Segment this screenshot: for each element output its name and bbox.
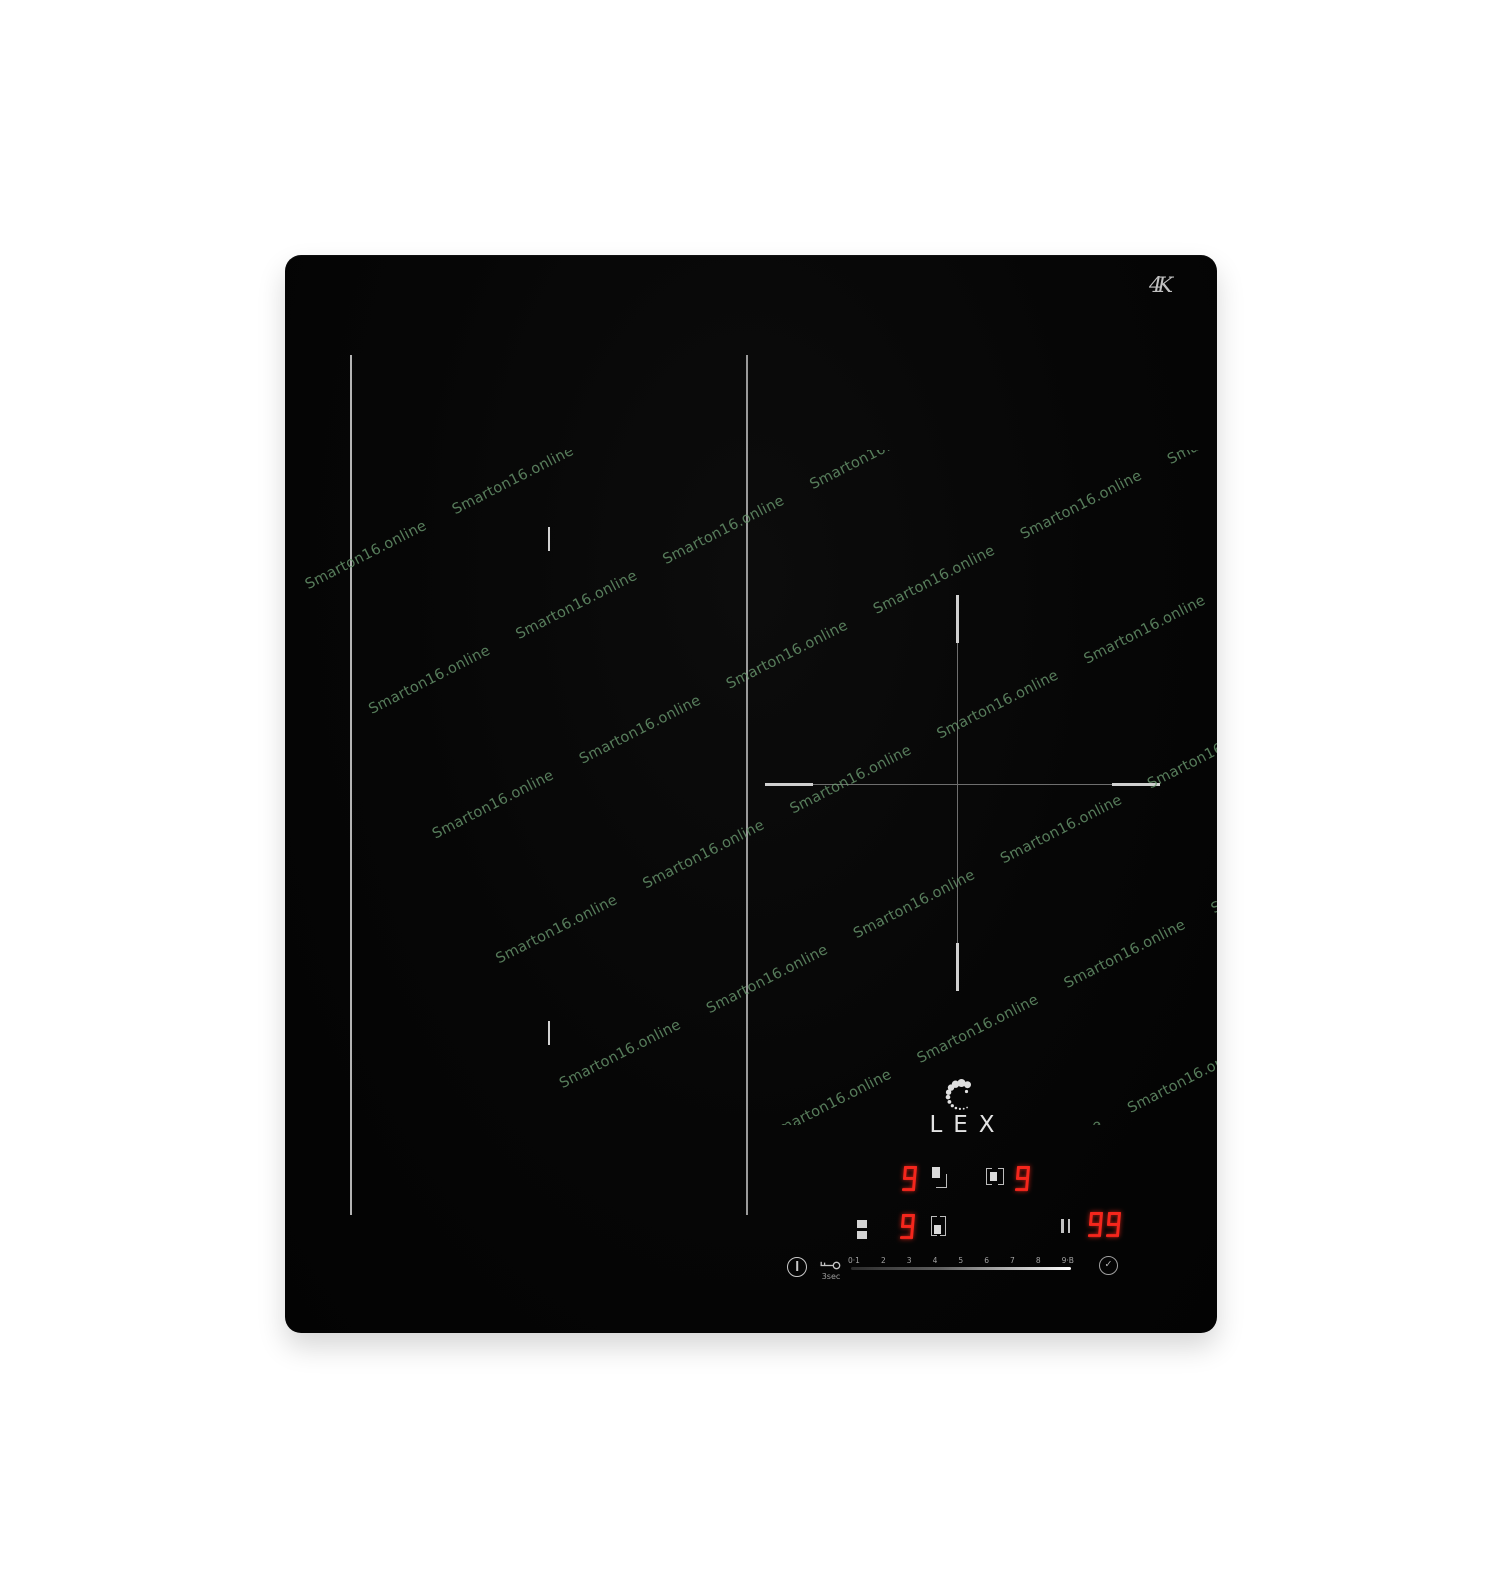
slider-scale-label: 8 xyxy=(1036,1256,1041,1265)
watermark-text: Smarton16.online xyxy=(513,568,640,643)
confirm-check-icon: ✓ xyxy=(1099,1256,1118,1275)
watermark-text: Smarton16.online xyxy=(450,450,577,518)
watermark-text: Smarton16.online xyxy=(724,618,851,693)
zone-position-right-icon xyxy=(986,1168,1004,1185)
watermark-text: Smarton16.online xyxy=(1165,450,1217,468)
right-zone-crosshair-vertical xyxy=(957,595,958,991)
lex-logo-text: LEX xyxy=(902,1112,1022,1138)
watermark-text: Smarton16.online xyxy=(430,767,557,842)
lock-hold-duration-label: 3sec xyxy=(816,1272,846,1281)
watermark-text: Smarton16.online xyxy=(915,992,1042,1067)
flex-zone-right-line xyxy=(746,355,748,1215)
slider-scale-label: 7 xyxy=(1010,1256,1015,1265)
zone-position-rear-left-icon xyxy=(931,1216,946,1236)
watermark-text: Smarton16.online xyxy=(1125,1042,1217,1117)
watermark-text: Smarton16.online xyxy=(935,667,1062,742)
watermark-text: Smarton16.online xyxy=(640,817,767,892)
slider-scale-label: 0·1 xyxy=(848,1256,860,1265)
product-photo: 4K xyxy=(0,0,1500,1587)
watermark-text: Smarton16.online xyxy=(285,450,366,468)
flex-zone-center-tick-top xyxy=(548,527,550,551)
key-lock-icon xyxy=(818,1259,842,1272)
slider-scale-label: 2 xyxy=(881,1256,886,1265)
watermark-text: Smarton16.online xyxy=(788,742,915,817)
watermark-text: Smarton16.online xyxy=(1062,917,1189,992)
cooktop-glass-panel: 4K xyxy=(285,255,1217,1333)
watermark-text: Smarton16.online xyxy=(871,543,998,618)
crosshair-tick-bottom xyxy=(956,943,959,991)
crosshair-tick-top xyxy=(956,595,959,643)
right-zone-crosshair-horizontal xyxy=(765,784,1160,785)
flex-zone-left-line xyxy=(350,355,352,1215)
watermark-text: Smarton16.online xyxy=(303,518,430,593)
watermark-text: Smarton16.online xyxy=(851,867,978,942)
watermark-text: Smarton16.online xyxy=(660,493,787,568)
power-button-icon xyxy=(787,1257,807,1277)
watermark-text: Smarton16.online xyxy=(807,450,934,493)
zone-position-front-left-icon xyxy=(932,1167,947,1189)
watermark-text: Smarton16.online xyxy=(493,892,620,967)
glass-brand-mark: 4K xyxy=(1149,273,1168,297)
watermark-text: Smarton16.online xyxy=(366,643,493,718)
watermark-text: Smarton16.online xyxy=(1018,468,1145,543)
flex-zone-center-tick-bottom xyxy=(548,1021,550,1045)
watermark-text: Smarton16.online xyxy=(1209,842,1217,917)
crosshair-tick-right xyxy=(1112,783,1160,786)
watermark-text: Smarton16.online xyxy=(704,942,831,1017)
watermark-grid: Smarton16.onlineSmarton16.onlineSmarton1… xyxy=(285,450,1217,1125)
slider-scale-label: 6 xyxy=(984,1256,989,1265)
slider-scale-label: 9·B xyxy=(1062,1256,1074,1265)
power-slider-track xyxy=(851,1267,1071,1270)
crosshair-tick-left xyxy=(765,783,813,786)
slider-scale-label: 4 xyxy=(933,1256,938,1265)
timer-display xyxy=(1089,1212,1120,1237)
watermark-text: Smarton16.online xyxy=(1082,592,1209,667)
timer-pause-icon xyxy=(1061,1219,1071,1233)
flex-zone-front-level-display xyxy=(903,1166,916,1191)
slider-scale-label: 5 xyxy=(958,1256,963,1265)
right-zone-level-display xyxy=(1016,1166,1029,1191)
power-slider-scale: 0·123456789·B xyxy=(848,1256,1074,1265)
bridge-zones-icon xyxy=(857,1220,867,1239)
watermark-text: Smarton16.online xyxy=(1145,717,1217,792)
watermark-layer: Smarton16.onlineSmarton16.onlineSmarton1… xyxy=(285,450,1217,1125)
watermark-text: Smarton16.online xyxy=(557,1017,684,1092)
watermark-text: Smarton16.online xyxy=(577,692,704,767)
watermark-text: Smarton16.online xyxy=(768,1067,895,1125)
slider-scale-label: 3 xyxy=(907,1256,912,1265)
flex-zone-rear-level-display xyxy=(901,1214,914,1239)
watermark-text: Smarton16.online xyxy=(998,792,1125,867)
